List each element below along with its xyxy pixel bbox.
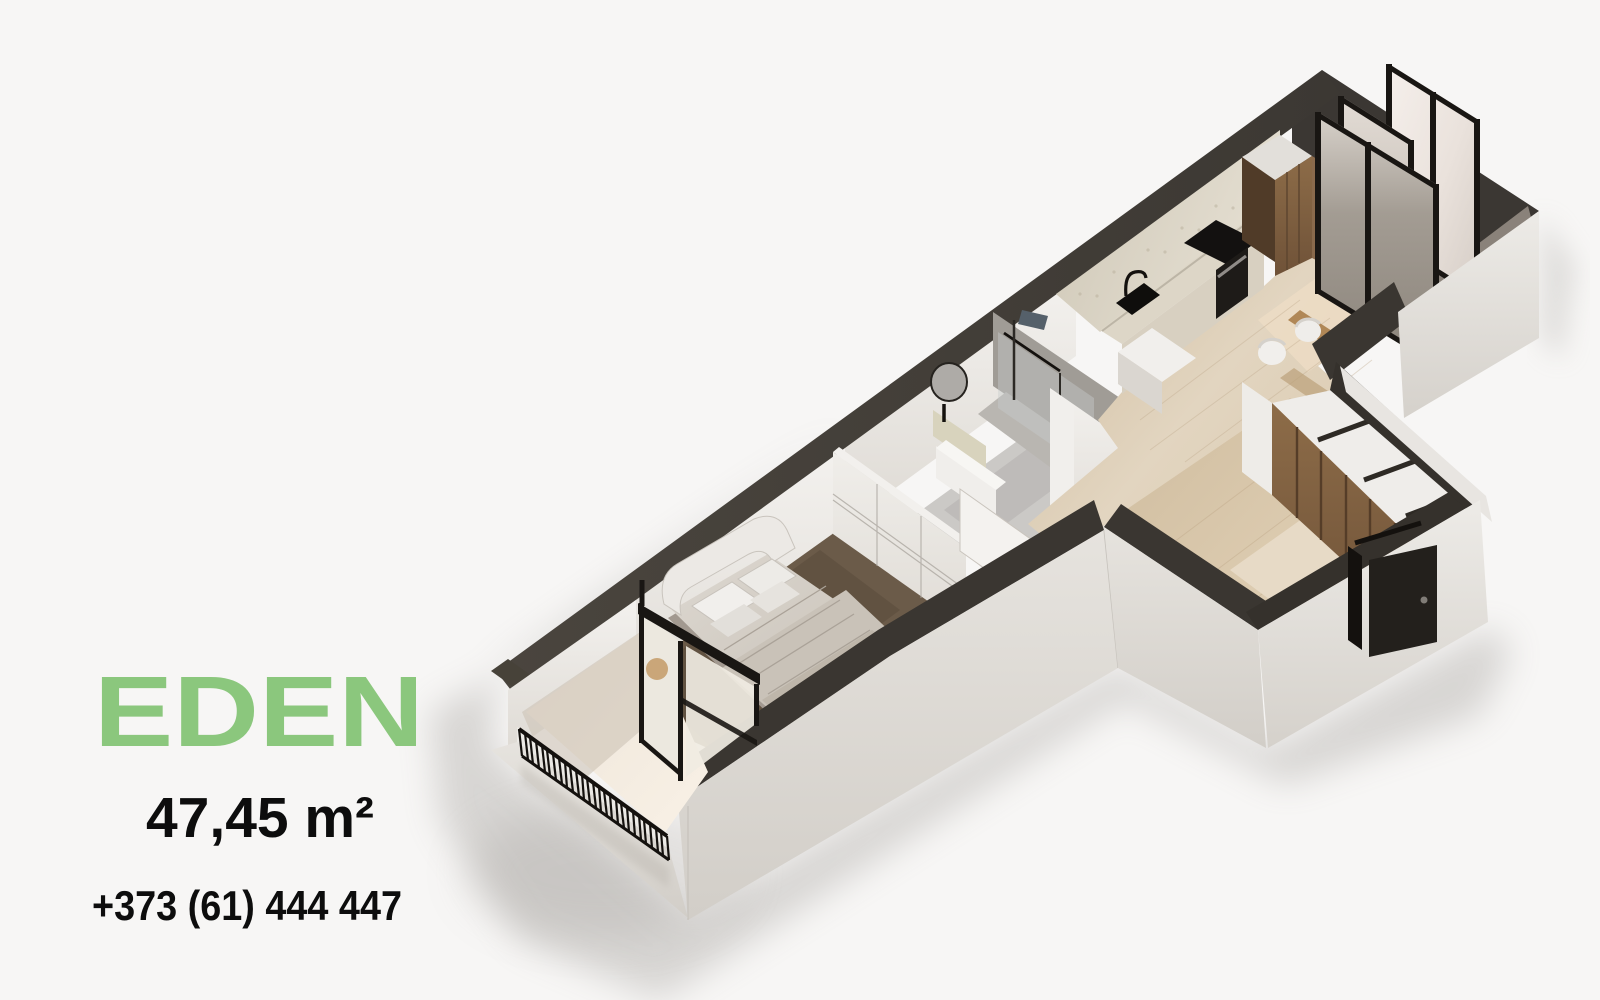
svg-text:47,45 m²: 47,45 m²	[146, 786, 374, 850]
svg-text:EDEN: EDEN	[94, 656, 424, 768]
svg-text:+373 (61) 444 447: +373 (61) 444 447	[92, 882, 402, 929]
